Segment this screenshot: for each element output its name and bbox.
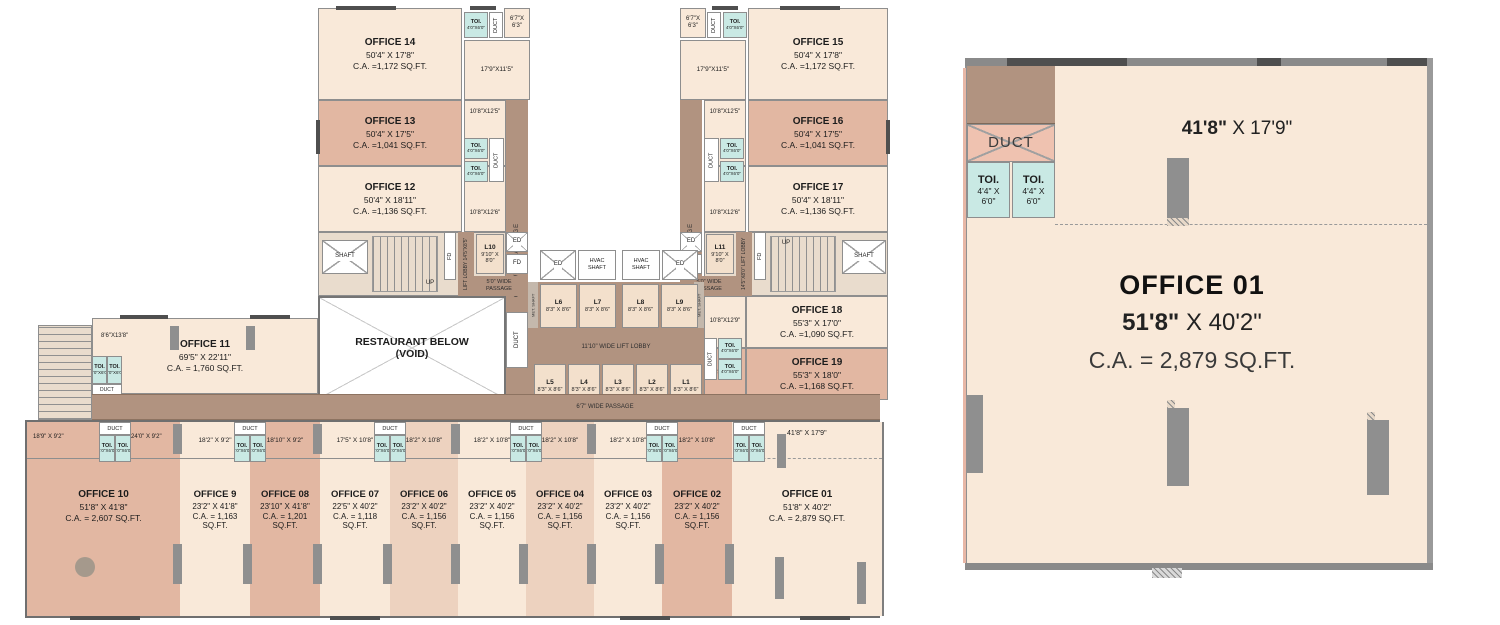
wall-segment [250,315,290,319]
fd-strip-right: FD [754,232,766,280]
office-17-name: OFFICE 17 [793,182,844,193]
passage-50-left-line2: PASSAGE [486,286,512,293]
duct-label: DUCT [711,17,717,32]
lift-l3-size: 8'3" X 8'6" [606,387,631,393]
toilet-box-b: TOI.4'0"X6'0" [526,435,542,462]
ed-label: ED [687,238,695,245]
office-05-area: C.A. = 1,156 SQ.FT. [462,512,522,530]
hvac-label-1: HVAC [590,258,605,265]
office-03-name: OFFICE 03 [604,489,652,500]
detail-duct-label: DUCT [988,134,1034,152]
lift-l6-name: L6 [555,299,563,306]
column-mid-b [243,544,252,584]
office-05-text: OFFICE 05 23'2" X 40'2" C.A. = 1,156 SQ.… [458,459,526,616]
wall-segment [316,120,320,154]
hvac-label-1: HVAC [634,258,649,265]
wall-segment [1007,58,1127,66]
office-16-room: OFFICE 16 50'4" X 17'5" C.A. =1,041 SQ.F… [748,100,888,166]
room-108x125-left-label: 10'8"X12'5" [470,109,501,116]
office-08-text: OFFICE 08 23'10" X 41'8" C.A. = 1,201 SQ… [250,459,320,616]
office-09-area: C.A. = 1,163 SQ.FT. [185,512,245,530]
duct-label: DUCT [242,426,257,432]
toilet-box-b: TOI.4'0"X6'0" [749,435,765,462]
lift-l10-name: L10 [484,244,495,251]
ed-center-left: ED [540,250,576,280]
duct-label: DUCT [107,426,122,432]
office-18-room: OFFICE 18 55'3" X 17'0" C.A. =1,090 SQ.F… [746,296,888,348]
lift-l9-size: 8'3" X 8'6" [667,307,692,313]
office-14-name: OFFICE 14 [365,37,416,48]
toilet-left-wing-top: TOI. 4'0"X6'0" [464,12,488,38]
detail-column-left [967,395,983,473]
toilet-size: 4'0"X6'0" [749,449,765,454]
wall-segment [336,6,396,10]
duct-label: DUCT [100,387,114,393]
office-02-dims: 23'2" X 40'2" [674,502,719,511]
detail-column-center-hatch [1167,400,1175,408]
toilet-box-a: TOI.4'0"X6'0" [510,435,526,462]
office-13-area: C.A. =1,041 SQ.FT. [353,140,427,150]
column-strip-b [313,424,322,454]
duct-box: DUCT [234,422,266,435]
duct-right-wing-top: DUCT [707,12,721,38]
office-05-dims: 23'2" X 40'2" [469,502,514,511]
floor-drain-circle [75,557,95,577]
office-19-room: OFFICE 19 55'3" X 18'0" C.A. =1,168 SQ.F… [746,348,888,400]
detail-office-dims-bold: 51'8" [1122,309,1179,336]
shaft-right: SHAFT [842,240,886,274]
office-11-name: OFFICE 11 [180,339,230,350]
lift-l7-size: 8'3" X 8'6" [585,307,610,313]
ed-right: ED [680,232,702,252]
office-17-room: OFFICE 17 50'4" X 18'11" C.A. =1,136 SQ.… [748,166,888,232]
detail-office-dims: 51'8" X 40'2" [1027,309,1357,337]
toilet-size: 4'0"X6'0" [250,449,266,454]
strip-label-office-08: 18'10" X 9'2" [267,437,304,444]
toilet-box-b: TOI.4'0"X6'0" [115,435,131,462]
wall-segment [470,6,496,10]
room-179x115-right: 17'9"X11'5" [680,40,746,100]
ed-label: ED [676,261,684,268]
column-office-11-b [246,326,255,350]
lift-l10-size: 9'10" X 8'0" [477,252,503,264]
office-06-area: C.A. = 1,156 SQ.FT. [394,512,454,530]
office-10-name: OFFICE 10 [78,489,129,500]
detail-toilet-1-label: TOI. [978,174,999,186]
column-office-01-top [777,434,786,468]
office-18-area: C.A. =1,090 SQ.FT. [780,329,854,339]
office-15-room: OFFICE 15 50'4" X 17'8" C.A. =1,172 SQ.F… [748,8,888,100]
ed-center-right: ED [662,250,698,280]
detail-toilet-2-size-1: 4'4" X [1022,186,1044,196]
lift-l4-size: 8'3" X 8'6" [572,387,597,393]
lift-l10: L10 9'10" X 8'0" [476,234,504,274]
column-mid-h [655,544,664,584]
lift-l5-name: L5 [546,379,554,386]
strip-label-24-0x9-2: 24'0" X 9'2" [131,434,162,440]
main-lift-lobby-label: 11'10" WIDE LIFT LOBBY [528,342,704,354]
toilet-box-a: TOI.4'0"X6'0" [99,435,115,462]
detail-bottom-hatch [1152,568,1182,578]
office-08-name: OFFICE 08 [261,489,309,500]
office-02-name: OFFICE 02 [673,489,721,500]
lift-l6-size: 8'3" X 8'6" [546,307,571,313]
office-14-room: OFFICE 14 50'4" X 17'8" C.A. =1,172 SQ.F… [318,8,462,100]
detail-top-dim-bold: 41'8" [1182,118,1227,139]
wall-segment [1387,58,1427,66]
toilet-size: 4'0"X6'0" [115,449,131,454]
up-label: UP [426,280,434,287]
toilet-size: 4'0"X6'0" [733,449,749,454]
shaft-left-label: SHAFT [334,253,356,260]
lift-l9: L9 8'3" X 8'6" [661,284,698,328]
toilet-box-b: TOI.4'0"X6'0" [390,435,406,462]
room-179x115-left: 17'9"X11'5" [464,40,530,100]
duct-label: DUCT [518,426,533,432]
column-mid-d [383,544,392,584]
duct-office-18-19: DUCT [704,338,717,380]
strip-label-office-02: 18'2" X 10'8" [679,437,716,444]
duct-toilet-cluster-o5-o4: DUCT TOI.4'0"X6'0" TOI.4'0"X6'0" [510,422,542,462]
lift-l3-name: L3 [614,379,622,386]
duct-label: DUCT [494,152,500,167]
duct-label: DUCT [708,352,714,366]
room-179x115-left-label: 17'9"X11'5" [481,66,514,74]
floor-plan-canvas: 6'7" WIDE PASSAGE 6'7" WIDE PASSAGE OFFI… [0,0,1500,625]
passage-horizontal-label: 6'7" WIDE PASSAGE [540,402,670,414]
duct-box: DUCT [510,422,542,435]
restaurant-label-2: (VOID) [396,348,429,360]
detail-bottom-wall [965,563,1433,570]
lift-lobby-right-label: 14'5"X8'0" LIFT LOBBY [741,238,747,290]
column-mid-i [725,544,734,584]
office-02-text: OFFICE 02 23'2" X 40'2" C.A. = 1,156 SQ.… [662,459,732,616]
toilet-size: 4'0"X6'0" [99,449,115,454]
office-02-area: C.A. = 1,156 SQ.FT. [667,512,727,530]
wall-segment [886,120,890,154]
lift-l8-size: 8'3" X 8'6" [628,307,653,313]
toilet-size: 4'0"X6'0" [374,449,390,454]
office-04-dims: 23'2" X 40'2" [537,502,582,511]
lift-lobby-left-label: LIFT LOBBY 14'5"X8'5" [463,238,469,290]
duct-toilet-cluster-o7-o6: DUCT TOI.4'0"X6'0" TOI.4'0"X6'0" [374,422,406,462]
detail-toilet-1: TOI. 4'4" X 6'0" [967,162,1010,218]
toilet-box-b: TOI.4'0"X6'0" [662,435,678,462]
strip-label-office-03: 18'2" X 10'8" [610,437,647,444]
lift-l7: L7 8'3" X 8'6" [579,284,616,328]
duct-label: DUCT [741,426,756,432]
duct-toilet-cluster-o1: DUCT TOI.4'0"X6'0" TOI.4'0"X6'0" [733,422,765,462]
wall-segment [330,616,380,620]
duct-label: DUCT [709,152,715,167]
stairs-right-up-label: UP [776,238,796,250]
toilet-box-b: TOI.4'0"X6'0" [250,435,266,462]
office-16-dims: 50'4" X 17'5" [794,129,842,139]
lift-l11: L11 9'10" X 8'0" [706,234,734,274]
detail-toilet-2-label: TOI. [1023,174,1044,186]
detail-toilet-2-size-2: 6'0" [1026,196,1040,206]
toilet-size: 4'0"X6'0" [510,449,526,454]
toilet-left-mid-2: TOI. 4'0"X6'0" [464,161,488,182]
duct-toilet-cluster-o9-o8: DUCT TOI.4'0"X6'0" TOI.4'0"X6'0" [234,422,266,462]
office-04-text: OFFICE 04 23'2" X 40'2" C.A. = 1,156 SQ.… [526,459,594,616]
detail-column-center [1167,408,1189,486]
toilet-size: 4'0"X6'0" [390,449,406,454]
office-06-dims: 23'2" X 40'2" [401,502,446,511]
lift-l5-size: 8'3" X 8'6" [538,387,563,393]
column-mid-e [451,544,460,584]
column-mid-g [587,544,596,584]
column-mid-a [173,544,182,584]
toilet-office-19: TOI. 4'0"X6'0" [718,359,742,380]
toilet-right-wing-top: TOI. 4'0"X6'0" [723,12,747,38]
duct-left-mid: DUCT [489,138,504,182]
corner-room-left-label: 6'7"X 6'3" [505,16,529,30]
column-office-11-a [170,326,179,350]
detail-office-area: C.A. = 2,879 SQ.FT. [1027,347,1357,374]
detail-toilet-1-size-1: 4'4" X [977,186,999,196]
hvac-label-2: SHAFT [632,265,650,272]
stairs-left-up-label: UP [420,278,440,290]
office-12-name: OFFICE 12 [365,182,416,193]
passage-horizontal [92,394,880,420]
shaft-left: SHAFT [322,240,368,274]
toilet-size: 4'0"X6'0" [467,149,485,154]
room-108x125-right-label: 10'8"X12'5" [710,109,741,116]
office-01-detail-panel: DUCT TOI. 4'4" X 6'0" TOI. 4'4" X 6'0" 4… [965,58,1433,570]
toilet-box-a: TOI.4'0"X6'0" [646,435,662,462]
duct-toilet-cluster-o10: DUCT TOI.4'0"X6'0" TOI.4'0"X6'0" [99,422,131,462]
office-04-area: C.A. = 1,156 SQ.FT. [530,512,590,530]
fd-strip-left: FD [444,232,456,280]
toilet-size: 4'0"X6'0" [646,449,662,454]
lift-l9-name: L9 [676,299,684,306]
duct-box: DUCT [646,422,678,435]
fd-label: FD [757,252,763,259]
toilet-box-a: TOI.4'0"X6'0" [234,435,250,462]
office-12-area: C.A. =1,136 SQ.FT. [353,206,427,216]
office-16-area: C.A. =1,041 SQ.FT. [781,140,855,150]
detail-office-name: OFFICE 01 [1027,270,1357,301]
office-12-room: OFFICE 12 50'4" X 18'11" C.A. =1,136 SQ.… [318,166,462,232]
lift-l1-name: L1 [682,379,690,386]
column-mid-f [519,544,528,584]
office-06-name: OFFICE 06 [400,489,448,500]
shaft-right-label: SHAFT [853,253,875,260]
strip-label-office-05: 18'2" X 10'8" [474,437,511,444]
wall-segment [70,616,140,620]
office-01-name: OFFICE 01 [782,489,833,500]
column-strip-c [451,424,460,454]
passage-50-left-line1: 5'0" WIDE [486,279,511,286]
toilet-size: 4'0"X6'0" [467,26,485,31]
room-108x129-label: 10'8"X12'9" [710,318,741,325]
passage-50-left: 5'0" WIDE PASSAGE [470,276,528,296]
strip-label-office-07: 17'5" X 10'8" [337,437,374,444]
toilet-right-mid-2: TOI. 4'0"X6'0" [720,161,744,182]
office-07-name: OFFICE 07 [331,489,379,500]
office-09-name: OFFICE 9 [194,489,237,500]
office-15-area: C.A. =1,172 SQ.FT. [781,61,855,71]
hvac-label-2: SHAFT [588,265,606,272]
office-08-area: C.A. = 1,201 SQ.FT. [255,512,315,530]
up-label: UP [782,240,790,247]
duct-label: DUCT [514,332,520,349]
ed-left: ED [506,232,528,252]
lift-l6: L6 8'3" X 8'6" [540,284,577,328]
detail-right-wall [1427,58,1433,570]
detail-office-dims-rest: X 40'2" [1179,309,1262,336]
wall-segment [800,616,850,620]
column-office-01-a [775,557,784,599]
office-15-name: OFFICE 15 [793,37,844,48]
toilet-box-a: TOI.4'0"X6'0" [374,435,390,462]
office-10-area: C.A. = 2,607 SQ.FT. [65,513,141,523]
lift-l4-name: L4 [580,379,588,386]
office-11-dims: 69'5" X 22'11" [179,352,231,362]
lift-l7-name: L7 [594,299,602,306]
room-108x126-right-label: 10'8"X12'6" [710,210,741,217]
stair-size-label: 8'6"X13'8" [101,333,128,339]
office-03-area: C.A. = 1,156 SQ.FT. [598,512,658,530]
office-03-dims: 23'2" X 40'2" [605,502,650,511]
office-13-name: OFFICE 13 [365,116,416,127]
office-03-text: OFFICE 03 23'2" X 40'2" C.A. = 1,156 SQ.… [594,459,662,616]
lift-l2-size: 8'3" X 8'6" [640,387,665,393]
lift-l2-name: L2 [648,379,656,386]
toilet-size: 4'0"X6'0" [526,449,542,454]
office-01-area: C.A. = 2,879 SQ.FT. [769,513,845,523]
toilet-size: 4'0"X6'0" [721,349,739,354]
office-16-name: OFFICE 16 [793,116,844,127]
toilet-size: 4'0"X6'0" [721,370,739,375]
office-11-room: 8'6"X13'8" OFFICE 11 69'5" X 22'11" C.A.… [92,318,318,394]
fd-label: FD [513,260,521,267]
hvac-shaft-right: HVAC SHAFT [622,250,660,280]
column-strip-a [173,424,182,454]
fd-label: FD [447,252,453,259]
detail-column-top-hatch [1167,218,1189,226]
office-14-area: C.A. =1,172 SQ.FT. [353,61,427,71]
detail-toilet-1-size-2: 6'0" [981,196,995,206]
office-05-name: OFFICE 05 [468,489,516,500]
duct-restaurant: DUCT [506,312,528,368]
column-strip-d [587,424,596,454]
strip-label-18-9x9-2: 18'9" X 9'2" [33,434,64,440]
restaurant-label-1: RESTAURANT BELOW [355,336,469,348]
toilet-size: 4'0"X6'0" [92,371,107,376]
room-179x115-right-label: 17'9"X11'5" [697,66,730,74]
ed-label: ED [554,261,562,268]
office-19-name: OFFICE 19 [792,357,843,368]
duct-left-wing-top: DUCT [489,12,503,38]
toilet-size: 4'0"X6'0" [234,449,250,454]
met-shaft-label: MET. SHAFT [531,293,536,316]
detail-duct: DUCT [967,124,1055,162]
strip-label-office-06: 18'2" X 10'8" [406,437,443,444]
duct-box: DUCT [99,422,131,435]
toilet-right-mid-1: TOI. 4'0"X6'0" [720,138,744,159]
lift-l11-size: 9'10" X 8'0" [707,252,733,264]
lift-l1-size: 8'3" X 8'6" [674,387,699,393]
office-06-text: OFFICE 06 23'2" X 40'2" C.A. = 1,156 SQ.… [390,459,458,616]
strip-label-office-09: 18'2" X 9'2" [198,437,231,444]
toilet-office-11-a: TOI. 4'0"X6'0" [92,356,107,384]
corner-room-right: 6'7"X 6'3" [680,8,706,38]
wall-segment [120,315,168,319]
toilet-box-a: TOI.4'0"X6'0" [733,435,749,462]
office-01-dims: 51'8" X 40'2" [783,502,831,512]
strip-label-office-04: 18'2" X 10'8" [542,437,579,444]
office-19-dims: 55'3" X 18'0" [793,370,841,380]
lift-l8-name: L8 [637,299,645,306]
column-mid-c [313,544,322,584]
detail-dashed-line [1055,224,1427,225]
stairs-office-11 [38,325,92,420]
met-shaft-left: MET. SHAFT [528,282,538,328]
wall-segment [1257,58,1281,66]
passage-h-label: 6'7" WIDE PASSAGE [576,404,633,411]
office-13-dims: 50'4" X 17'5" [366,129,414,139]
detail-left-edge [963,68,966,563]
room-108x126-left-label: 10'8"X12'6" [470,210,501,217]
office-18-dims: 55'3" X 17'0" [793,318,841,328]
detail-column-right-hatch [1367,412,1375,420]
office-13-room: OFFICE 13 50'4" X 17'5" C.A. =1,041 SQ.F… [318,100,462,166]
duct-label: DUCT [493,17,499,32]
office-12-dims: 50'4" X 18'11" [364,195,416,205]
toilet-office-18: TOI. 4'0"X6'0" [718,338,742,359]
detail-column-right [1367,420,1389,495]
office-19-area: C.A. =1,168 SQ.FT. [780,381,854,391]
ed-label: ED [513,238,521,245]
lobby-main-label: 11'10" WIDE LIFT LOBBY [581,344,650,351]
corner-room-right-label: 6'7"X 6'3" [681,16,705,30]
office-17-area: C.A. =1,136 SQ.FT. [781,206,855,216]
office-18-name: OFFICE 18 [792,305,843,316]
office-07-text: OFFICE 07 22'5" X 40'2" C.A. = 1,118 SQ.… [320,459,390,616]
office-08-dims: 23'10" X 41'8" [260,502,310,511]
lift-l8: L8 8'3" X 8'6" [622,284,659,328]
office-17-dims: 50'4" X 18'11" [792,195,844,205]
lift-lobby-right: 14'5"X8'0" LIFT LOBBY [736,232,752,296]
toilet-size: 4'0"X6'0" [723,172,741,177]
office-14-dims: 50'4" X 17'8" [366,50,414,60]
wall-segment [780,6,840,10]
detail-top-dimension: 41'8" X 17'9" [1117,118,1357,140]
office-07-area: C.A. = 1,118 SQ.FT. [325,512,385,530]
lift-l11-name: L11 [715,244,726,251]
strip-label-41-8x17-9: 41'8" X 17'9" [787,430,827,437]
toilet-size: 4'0"X6'0" [726,26,744,31]
duct-right-mid: DUCT [704,138,719,182]
office-07-dims: 22'5" X 40'2" [332,502,377,511]
detail-passage-stub [967,66,1055,124]
duct-label: DUCT [382,426,397,432]
toilet-size: 4'0"X6'0" [467,172,485,177]
column-office-01-b [857,562,866,604]
toilet-office-11-b: TOI. 4'0"X6'0" [107,356,122,384]
restaurant-void: RESTAURANT BELOW (VOID) [318,296,506,400]
office-09-text: OFFICE 9 23'2" X 41'8" C.A. = 1,163 SQ.F… [180,459,250,616]
toilet-left-mid-1: TOI. 4'0"X6'0" [464,138,488,159]
office-11-area: C.A. = 1,760 SQ.FT. [167,363,243,373]
duct-box: DUCT [374,422,406,435]
corner-room-left: 6'7"X 6'3" [504,8,530,38]
duct-box: DUCT [733,422,765,435]
detail-office-text: OFFICE 01 51'8" X 40'2" C.A. = 2,879 SQ.… [1027,270,1357,374]
toilet-size: 4'0"X6'0" [662,449,678,454]
